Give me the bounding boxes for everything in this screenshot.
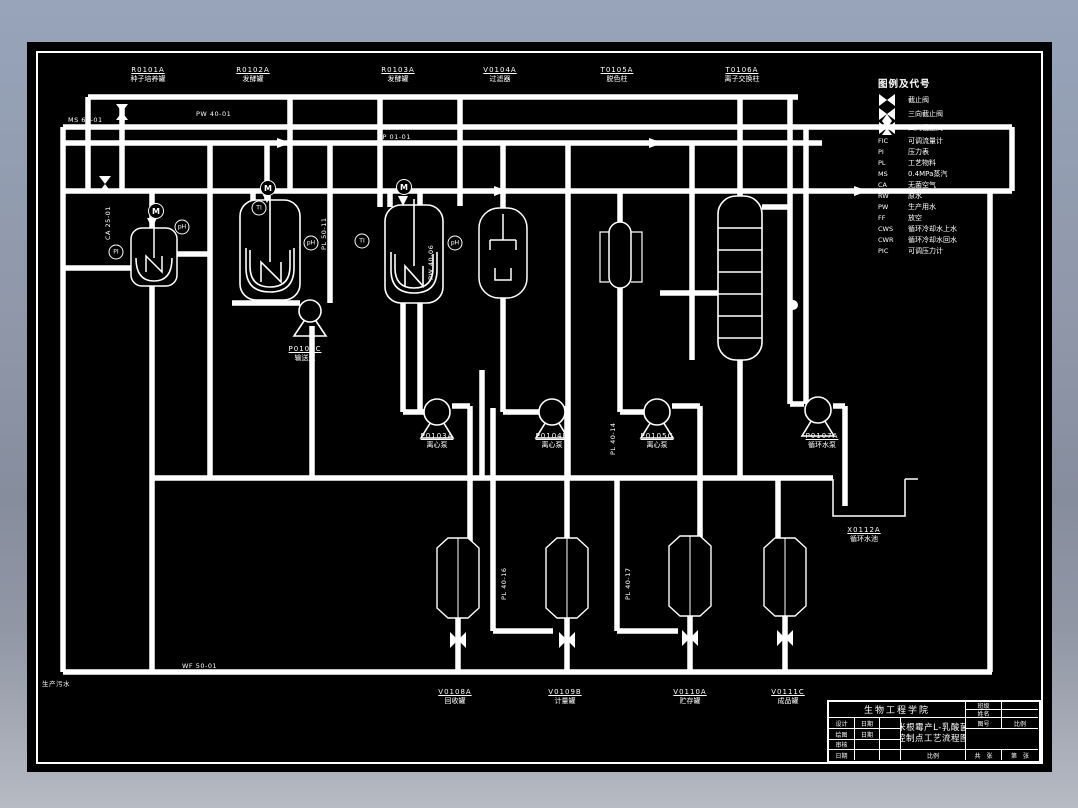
equipment-label: P0105C离心泵 bbox=[641, 432, 674, 449]
legend-code-label: 可调流量计 bbox=[908, 136, 943, 146]
equipment-label: P0107A循环水泵 bbox=[806, 432, 839, 449]
legend-code-row: CWR循环冷却水回水 bbox=[878, 234, 1038, 245]
equipment-label: V0110A贮存罐 bbox=[673, 688, 706, 705]
equipment-tag: R0103A bbox=[381, 66, 414, 75]
legend-code-row: CWS循环冷却水上水 bbox=[878, 223, 1038, 234]
instrument-bubble: pH bbox=[304, 236, 319, 251]
pipe-code-label: PL 40-17 bbox=[624, 568, 632, 601]
title-block: 生物工程学院 班级 姓名 设计 日期 米根霉产L-乳酸菌 控制点工艺流程图 图号… bbox=[827, 700, 1041, 763]
filter-vessel-icon bbox=[479, 208, 527, 298]
legend-code: PW bbox=[878, 203, 908, 211]
tb-empty-cell bbox=[966, 729, 1038, 750]
motor-icon: M bbox=[396, 179, 412, 195]
equipment-name: 离子交换柱 bbox=[725, 75, 760, 84]
pipe-code-label: PL 50-11 bbox=[320, 218, 328, 251]
seed-tank-icon bbox=[131, 219, 177, 286]
tb-title-line1: 米根霉产L-乳酸菌 bbox=[901, 723, 966, 734]
instrument-bubble: pH bbox=[448, 236, 463, 251]
decolor-column-icon bbox=[600, 222, 642, 288]
tb-cell-blank bbox=[880, 750, 901, 760]
legend-code-label: 生产用水 bbox=[908, 202, 936, 212]
legend-symbol-rows: 截止阀三向截止阀四向截止阀 bbox=[878, 93, 1038, 135]
legend-code-row: RW原水 bbox=[878, 190, 1038, 201]
legend-code: PIC bbox=[878, 247, 908, 255]
legend-code: MS bbox=[878, 170, 908, 178]
equipment-label: X0112A循环水池 bbox=[847, 526, 880, 543]
legend-symbol-row: 三向截止阀 bbox=[878, 107, 1038, 121]
equipment-tag: R0102A bbox=[236, 66, 269, 75]
screenshot-root: { "window": { "canvas_bg": "#000000", "l… bbox=[0, 0, 1078, 808]
legend-code: CWS bbox=[878, 225, 908, 233]
motor-icon: M bbox=[260, 180, 276, 196]
pipe-network bbox=[63, 97, 1012, 672]
legend-symbol-label: 截止阀 bbox=[908, 95, 929, 105]
equipment-label: R0102A发酵罐 bbox=[236, 66, 269, 83]
pipe-code-label: PL 40-16 bbox=[500, 568, 508, 601]
equipment-name: 计量罐 bbox=[548, 697, 581, 706]
equipment-name: 循环水泵 bbox=[806, 441, 839, 450]
legend-symbol-row: 四向截止阀 bbox=[878, 121, 1038, 135]
legend-code: CA bbox=[878, 181, 908, 189]
equipment-tag: V0104A bbox=[483, 66, 516, 75]
instrument-bubble: pH bbox=[175, 220, 190, 235]
equipment-tag: V0111C bbox=[771, 688, 805, 697]
tb-class-value bbox=[1002, 702, 1038, 710]
equipment-tag: T0105A bbox=[601, 66, 634, 75]
tb-class-label: 班级 bbox=[966, 702, 1002, 710]
legend-code-label: 循环冷却水上水 bbox=[908, 224, 957, 234]
legend-code-row: PIC可调压力计 bbox=[878, 245, 1038, 256]
legend-code-row: FF放空 bbox=[878, 212, 1038, 223]
equipment-tag: R0101A bbox=[131, 66, 166, 75]
tb-scale-label: 比例 bbox=[1002, 718, 1038, 729]
equipment-tag: P0102C bbox=[289, 345, 322, 354]
equipment-label: P0102C输送泵 bbox=[289, 345, 322, 362]
instrument-bubble: PI bbox=[109, 245, 124, 260]
equipment-name: 离心泵 bbox=[641, 441, 674, 450]
equipment-name: 回收罐 bbox=[438, 697, 471, 706]
equipment-tag: V0109B bbox=[548, 688, 581, 697]
legend-code: PL bbox=[878, 159, 908, 167]
equipment-tag: P0104B bbox=[536, 432, 569, 441]
legend-code-label: 可调压力计 bbox=[908, 246, 943, 256]
equipment-tag: V0108A bbox=[438, 688, 471, 697]
equipment-name: 离心泵 bbox=[536, 441, 569, 450]
tb-date-label: 日期 bbox=[829, 750, 855, 760]
equipment-name: 脱色柱 bbox=[601, 75, 634, 84]
equipment-label: P0104B离心泵 bbox=[536, 432, 569, 449]
equipment-label: V0104A过滤器 bbox=[483, 66, 516, 83]
pipe-code-label: MS 65-01 bbox=[68, 116, 103, 124]
equipment-label: V0108A回收罐 bbox=[438, 688, 471, 705]
legend-code: FF bbox=[878, 214, 908, 222]
pipe-code-label: PW 40-06 bbox=[427, 245, 435, 280]
tb-date-value bbox=[855, 750, 880, 760]
legend-symbol-row: 截止阀 bbox=[878, 93, 1038, 107]
tb-title-line2: 控制点工艺流程图 bbox=[901, 734, 966, 745]
legend-title: 图例及代号 bbox=[878, 76, 1038, 90]
tb-cell-blank bbox=[880, 740, 901, 750]
equipment-label: R0101A种子培养罐 bbox=[131, 66, 166, 83]
equipment-name: 发酵罐 bbox=[381, 75, 414, 84]
tb-scale-cell: 比例 bbox=[901, 750, 966, 760]
equipment-name: 贮存罐 bbox=[673, 697, 706, 706]
legend-code-row: PW生产用水 bbox=[878, 201, 1038, 212]
equipment-tag: X0112A bbox=[847, 526, 880, 535]
pipe-code-label: PL 40-13 bbox=[688, 198, 696, 231]
legend-code: PI bbox=[878, 148, 908, 156]
equipment-tag: P0107A bbox=[806, 432, 839, 441]
equipment-label: T0106A离子交换柱 bbox=[725, 66, 760, 83]
pipe-code-label: PW 40-21 bbox=[786, 225, 794, 260]
equipment-label: R0103A发酵罐 bbox=[381, 66, 414, 83]
instrument-bubble: TI bbox=[355, 234, 370, 249]
equipment-name: 发酵罐 bbox=[236, 75, 269, 84]
legend-code: RW bbox=[878, 192, 908, 200]
equipment-tag: P0103A bbox=[421, 432, 454, 441]
legend-code-row: FIC可调流量计 bbox=[878, 135, 1038, 146]
equipment-name: 种子培养罐 bbox=[131, 75, 166, 84]
motor-icon: M bbox=[148, 203, 164, 219]
legend-code-label: 放空 bbox=[908, 213, 922, 223]
pipe-code-label: CWS 40-30 bbox=[478, 414, 486, 455]
pipe-code-label: 生产污水 bbox=[42, 678, 70, 688]
equipment-tag: T0106A bbox=[725, 66, 760, 75]
instrument-bubble: TI bbox=[252, 201, 267, 216]
tb-drawingno-label: 图号 bbox=[966, 718, 1002, 729]
pipe-code-label: CWS 40-22 bbox=[802, 224, 810, 265]
pipe-code-label: CA 25-01 bbox=[104, 206, 112, 240]
pipe-code-label: PW 40-01 bbox=[196, 110, 231, 118]
pipe-code-label: WF 50-01 bbox=[182, 662, 217, 670]
equipment-name: 离心泵 bbox=[421, 441, 454, 450]
tb-drawing-title: 米根霉产L-乳酸菌 控制点工艺流程图 bbox=[901, 718, 966, 750]
equipment-label: V0109B计量罐 bbox=[548, 688, 581, 705]
tb-name-value bbox=[1002, 710, 1038, 718]
equipment-name: 成品罐 bbox=[771, 697, 805, 706]
ion-exchange-column-icon bbox=[718, 196, 762, 360]
fermenter-1-icon bbox=[240, 196, 300, 300]
tb-cell-blank bbox=[880, 718, 901, 729]
legend-code: FIC bbox=[878, 137, 908, 145]
legend-code-row: CA无菌空气 bbox=[878, 179, 1038, 190]
legend-symbol-label: 三向截止阀 bbox=[908, 109, 943, 119]
legend-code-label: 无菌空气 bbox=[908, 180, 936, 190]
legend-code-row: PL工艺物料 bbox=[878, 157, 1038, 168]
tb-draw-label: 绘图 bbox=[829, 729, 855, 740]
tb-check-label: 审核 bbox=[829, 740, 855, 750]
tb-cell-blank bbox=[880, 729, 901, 740]
tb-design-date: 日期 bbox=[855, 718, 880, 729]
equipment-name: 输送泵 bbox=[289, 354, 322, 363]
tb-design-label: 设计 bbox=[829, 718, 855, 729]
equipment-tag: V0110A bbox=[673, 688, 706, 697]
legend-code-row: PI压力表 bbox=[878, 146, 1038, 157]
globe-valve-icon bbox=[878, 93, 908, 108]
legend-code-label: 0.4MPa蒸汽 bbox=[908, 169, 947, 179]
legend-code-row: MS0.4MPa蒸汽 bbox=[878, 168, 1038, 179]
legend: 图例及代号 截止阀三向截止阀四向截止阀 FIC可调流量计PI压力表PL工艺物料M… bbox=[878, 76, 1038, 256]
legend-code: CWR bbox=[878, 236, 908, 244]
equipment-label: V0111C成品罐 bbox=[771, 688, 805, 705]
legend-symbol-label: 四向截止阀 bbox=[908, 123, 943, 133]
tb-name-label: 姓名 bbox=[966, 710, 1002, 718]
pipe-code-label: TP 01-01 bbox=[378, 133, 411, 141]
pipe-code-label: CWR 40-30 bbox=[841, 449, 849, 490]
tb-sheets-total: 共 张 bbox=[966, 750, 1002, 760]
four-way-valve-icon bbox=[878, 121, 908, 136]
equipment-name: 过滤器 bbox=[483, 75, 516, 84]
tb-draw-date: 日期 bbox=[855, 729, 880, 740]
legend-code-label: 工艺物料 bbox=[908, 158, 936, 168]
legend-code-rows: FIC可调流量计PI压力表PL工艺物料MS0.4MPa蒸汽CA无菌空气RW原水P… bbox=[878, 135, 1038, 256]
equipment-name: 循环水池 bbox=[847, 535, 880, 544]
three-way-valve-icon bbox=[878, 107, 908, 122]
legend-code-label: 原水 bbox=[908, 191, 922, 201]
equipment-label: T0105A脱色柱 bbox=[601, 66, 634, 83]
pipe-code-label: PL 40-14 bbox=[609, 423, 617, 456]
equipment-label: P0103A离心泵 bbox=[421, 432, 454, 449]
legend-code-label: 压力表 bbox=[908, 147, 929, 157]
tb-sheet-no: 第 张 bbox=[1002, 750, 1038, 760]
title-block-org: 生物工程学院 bbox=[829, 702, 966, 718]
tb-check-value bbox=[855, 740, 880, 750]
equipment-tag: P0105C bbox=[641, 432, 674, 441]
legend-code-label: 循环冷却水回水 bbox=[908, 235, 957, 245]
